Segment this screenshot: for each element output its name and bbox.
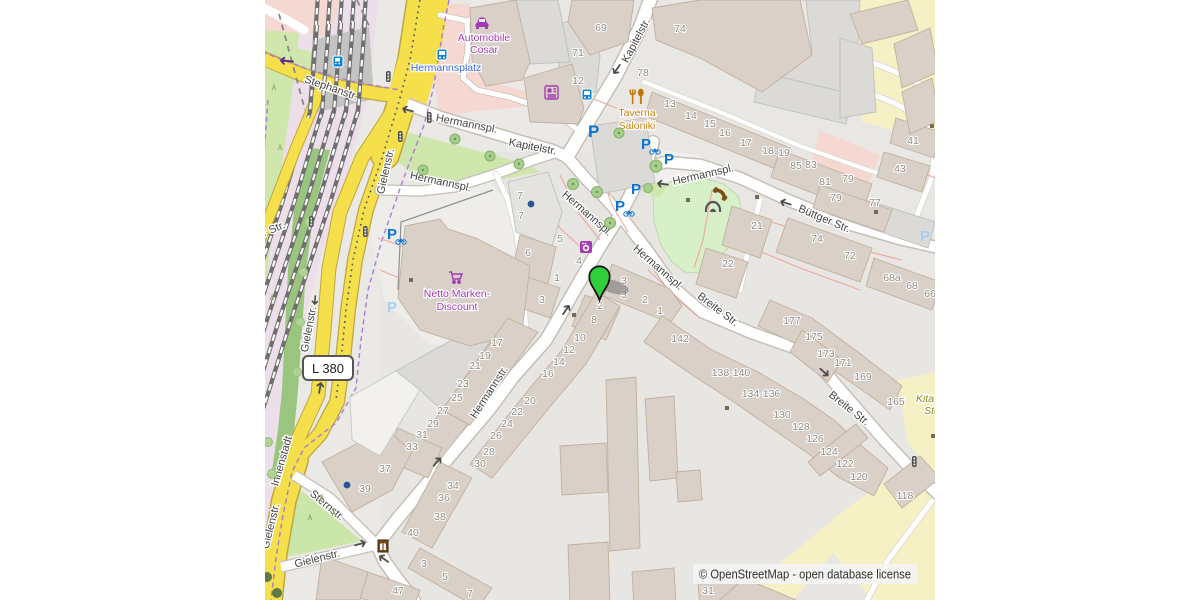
svg-text:68a: 68a: [883, 272, 901, 284]
svg-text:20: 20: [524, 395, 536, 407]
svg-text:P: P: [641, 136, 651, 153]
svg-text:Taverna: Taverna: [618, 107, 656, 119]
svg-text:71: 71: [572, 47, 584, 59]
svg-text:72: 72: [844, 250, 856, 262]
svg-text:2: 2: [597, 300, 603, 312]
svg-text:16: 16: [719, 127, 731, 139]
svg-text:27: 27: [437, 405, 449, 417]
svg-text:134-136: 134-136: [742, 388, 781, 400]
svg-text:L 380: L 380: [312, 361, 344, 376]
svg-text:79: 79: [830, 192, 842, 204]
svg-text:126: 126: [806, 433, 824, 445]
svg-text:26: 26: [490, 430, 502, 442]
svg-text:31: 31: [702, 585, 714, 597]
svg-text:25: 25: [451, 392, 463, 404]
svg-text:3: 3: [539, 294, 545, 306]
svg-text:P: P: [631, 181, 641, 198]
svg-text:85: 85: [790, 160, 802, 172]
svg-text:171: 171: [834, 357, 852, 369]
svg-text:37: 37: [379, 463, 391, 475]
svg-text:1: 1: [657, 305, 663, 317]
svg-text:23: 23: [457, 378, 469, 390]
svg-text:Hermannsplatz: Hermannsplatz: [411, 62, 482, 74]
svg-text:69: 69: [595, 22, 607, 34]
svg-text:Netto Marken-: Netto Marken-: [424, 288, 491, 300]
svg-text:33: 33: [406, 441, 418, 453]
svg-text:78: 78: [637, 67, 649, 79]
svg-text:21: 21: [469, 360, 481, 372]
svg-text:169: 169: [854, 371, 872, 383]
svg-text:1: 1: [554, 272, 560, 284]
svg-text:8: 8: [591, 314, 597, 326]
svg-text:39: 39: [359, 483, 371, 495]
svg-text:175: 175: [805, 331, 823, 343]
svg-text:19: 19: [479, 350, 491, 362]
svg-text:5: 5: [557, 233, 563, 245]
svg-text:16: 16: [542, 368, 554, 380]
svg-text:31: 31: [416, 429, 428, 441]
svg-text:P: P: [387, 299, 397, 316]
svg-text:Cosar: Cosar: [470, 44, 499, 56]
svg-text:10: 10: [574, 332, 586, 344]
svg-text:165: 165: [887, 396, 905, 408]
svg-text:177: 177: [783, 315, 801, 327]
svg-text:40: 40: [407, 527, 419, 539]
svg-text:Kita: Kita: [916, 393, 934, 405]
svg-text:38: 38: [434, 511, 446, 523]
svg-text:118: 118: [897, 490, 914, 502]
svg-text:Discount: Discount: [437, 301, 478, 313]
svg-text:P: P: [920, 228, 930, 245]
svg-text:30: 30: [474, 458, 486, 470]
svg-text:138-140: 138-140: [712, 367, 751, 379]
svg-text:17: 17: [491, 337, 503, 349]
svg-text:68: 68: [906, 280, 918, 292]
svg-text:12: 12: [563, 344, 575, 356]
svg-text:28: 28: [483, 446, 495, 458]
svg-text:3: 3: [421, 558, 427, 570]
svg-text:Saloniki: Saloniki: [619, 120, 656, 132]
svg-text:P: P: [664, 151, 674, 168]
svg-text:4: 4: [576, 255, 582, 267]
svg-text:47: 47: [392, 585, 404, 597]
svg-text:18: 18: [762, 145, 774, 157]
svg-text:© OpenStreetMap - open databas: © OpenStreetMap - open database license: [699, 568, 911, 582]
svg-text:P: P: [588, 122, 599, 141]
svg-text:66: 66: [924, 288, 936, 300]
svg-text:41: 41: [907, 135, 919, 147]
svg-text:5: 5: [442, 571, 448, 583]
svg-text:7: 7: [517, 190, 523, 202]
svg-text:128: 128: [792, 421, 810, 433]
svg-text:17: 17: [740, 137, 752, 149]
svg-text:142: 142: [671, 333, 689, 345]
svg-text:83: 83: [805, 159, 817, 171]
svg-text:12: 12: [572, 75, 584, 87]
svg-text:122: 122: [836, 458, 854, 470]
svg-text:24: 24: [501, 418, 513, 430]
svg-text:173: 173: [817, 348, 835, 360]
svg-text:36: 36: [438, 492, 450, 504]
svg-text:13: 13: [664, 98, 676, 110]
svg-text:6: 6: [525, 247, 531, 259]
svg-text:22: 22: [511, 406, 523, 418]
svg-text:29: 29: [427, 418, 439, 430]
svg-text:2: 2: [642, 294, 648, 306]
svg-text:P: P: [387, 226, 397, 243]
svg-text:77: 77: [869, 197, 881, 209]
svg-text:19: 19: [778, 147, 790, 159]
svg-text:120: 120: [850, 471, 868, 483]
svg-text:74: 74: [674, 23, 686, 35]
svg-text:130: 130: [773, 409, 791, 421]
svg-text:14: 14: [553, 356, 565, 368]
svg-text:81: 81: [819, 176, 831, 188]
svg-text:P: P: [615, 198, 625, 215]
svg-text:34: 34: [447, 480, 459, 492]
svg-text:79: 79: [842, 173, 854, 185]
svg-text:14: 14: [685, 110, 697, 122]
svg-text:7: 7: [467, 588, 473, 600]
svg-text:74: 74: [811, 233, 823, 245]
svg-text:15: 15: [704, 118, 716, 130]
svg-text:124: 124: [820, 446, 838, 458]
svg-text:Automobile: Automobile: [458, 32, 511, 44]
svg-text:43: 43: [894, 163, 906, 175]
svg-text:21: 21: [751, 220, 763, 232]
svg-text:7: 7: [518, 210, 524, 222]
svg-text:22: 22: [722, 258, 734, 270]
